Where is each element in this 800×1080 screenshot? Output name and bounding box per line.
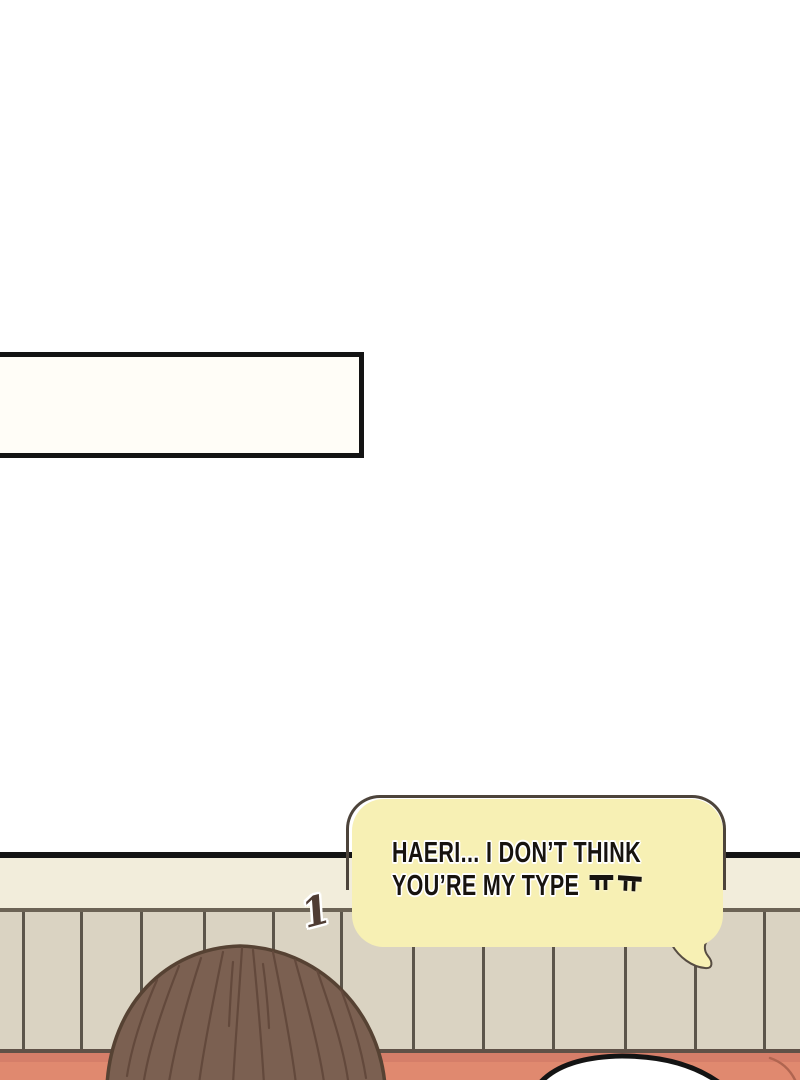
- sofa-seam-path: [770, 1058, 796, 1080]
- character-head: [95, 936, 395, 1080]
- plank-line: [22, 912, 25, 1049]
- comic-page: HAERI... I DON’T THINK YOU’RE MY TYPE 1: [0, 0, 800, 1080]
- plank-line: [763, 912, 766, 1049]
- bottom-bubble-shape: [536, 1056, 726, 1080]
- empty-caption-box: [0, 352, 364, 458]
- sofa-seam-line: [768, 1056, 800, 1080]
- tt-glyph: [617, 875, 641, 897]
- plank-line: [80, 912, 83, 1049]
- tt-glyph: [590, 875, 614, 895]
- bottom-speech-bubble: [530, 1052, 730, 1080]
- speech-text-line1: HAERI... I DON’T THINK: [392, 837, 641, 870]
- speech-text-line2: YOU’RE MY TYPE: [392, 870, 579, 902]
- speech-bubble: HAERI... I DON’T THINK YOU’RE MY TYPE: [352, 799, 723, 947]
- crying-emoticon: [585, 870, 641, 903]
- speech-bubble-line2: YOU’RE MY TYPE: [392, 870, 705, 903]
- speech-bubble-line1: HAERI... I DON’T THINK: [392, 837, 705, 870]
